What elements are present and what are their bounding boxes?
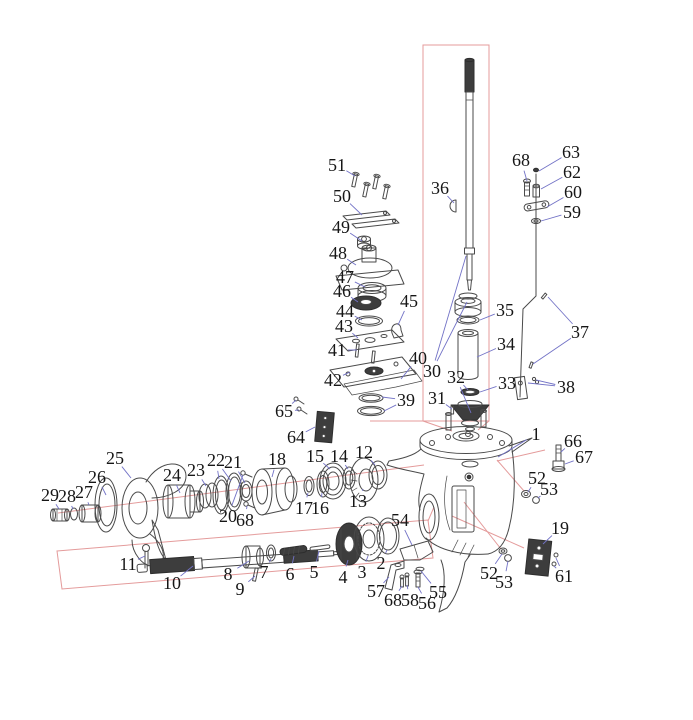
part-label-65: 65 bbox=[275, 401, 293, 421]
part-label-19: 19 bbox=[551, 518, 569, 538]
part-label-51: 51 bbox=[328, 155, 346, 175]
anode-19 bbox=[525, 539, 552, 576]
part-label-41: 41 bbox=[328, 340, 346, 360]
part-label-24: 24 bbox=[163, 465, 181, 485]
prop-spacer bbox=[79, 505, 101, 522]
red-connector bbox=[497, 460, 524, 491]
part-label-9: 9 bbox=[236, 579, 245, 599]
pump-grommet bbox=[358, 236, 371, 249]
leader-line-17 bbox=[307, 493, 308, 497]
washer-52a bbox=[522, 491, 531, 498]
leader-line-64 bbox=[306, 427, 315, 432]
small-seal bbox=[240, 481, 252, 501]
pump-bolts bbox=[350, 172, 390, 200]
red-connector bbox=[464, 502, 501, 549]
part-label-33: 33 bbox=[498, 373, 516, 393]
impeller bbox=[351, 296, 381, 310]
driveshaft bbox=[465, 58, 475, 290]
part-label-21: 21 bbox=[224, 452, 242, 472]
part-label-54: 54 bbox=[391, 510, 409, 530]
part-label-1: 1 bbox=[532, 424, 541, 444]
bearing-carrier bbox=[252, 468, 297, 515]
anode-screws bbox=[294, 397, 307, 414]
leader-line-30 bbox=[437, 302, 467, 361]
part-label-68: 68 bbox=[384, 590, 402, 610]
part-label-8: 8 bbox=[224, 564, 233, 584]
leader-line-39 bbox=[382, 397, 395, 399]
driveshaft-bearing bbox=[455, 293, 481, 317]
prop-nut bbox=[51, 509, 70, 521]
screw-68c bbox=[400, 575, 404, 587]
part-label-67: 67 bbox=[575, 447, 593, 467]
leader-line-48 bbox=[347, 259, 356, 265]
diagram-canvas: 3651504948474644434142454039303132353433… bbox=[0, 0, 693, 720]
screw-58 bbox=[405, 573, 409, 586]
leader-line-26 bbox=[102, 487, 106, 495]
part-art-layer bbox=[51, 58, 566, 612]
leader-line-62 bbox=[541, 177, 562, 189]
part-label-43: 43 bbox=[335, 316, 353, 336]
leader-line-40 bbox=[401, 367, 411, 379]
pump-plates bbox=[343, 211, 399, 228]
leader-line-45 bbox=[398, 311, 404, 325]
part-label-30: 30 bbox=[423, 361, 441, 381]
leader-line-49 bbox=[350, 233, 362, 241]
leader-line-34 bbox=[477, 348, 496, 357]
part-label-39: 39 bbox=[397, 390, 415, 410]
trim-tab bbox=[400, 541, 433, 560]
exploded-parts-diagram: 3651504948474644434142454039303132353433… bbox=[0, 0, 693, 720]
part-label-42: 42 bbox=[324, 370, 342, 390]
part-label-57: 57 bbox=[367, 581, 385, 601]
part-label-32: 32 bbox=[447, 367, 465, 387]
red-connector bbox=[428, 507, 434, 521]
part-label-68: 68 bbox=[236, 510, 254, 530]
part-label-64: 64 bbox=[287, 427, 305, 447]
washer-7 bbox=[267, 545, 276, 561]
part-label-34: 34 bbox=[497, 334, 515, 354]
part-label-53: 53 bbox=[495, 572, 513, 592]
leader-line-50 bbox=[350, 204, 362, 215]
leader-line-59 bbox=[541, 215, 561, 221]
leader-lines-layer bbox=[56, 158, 574, 594]
part-label-2: 2 bbox=[377, 553, 386, 573]
part-label-18: 18 bbox=[268, 449, 286, 469]
leader-line-18 bbox=[272, 470, 274, 477]
driveshaft-oring bbox=[457, 316, 479, 324]
propshaft-bearing bbox=[320, 463, 346, 499]
part-label-59: 59 bbox=[563, 202, 581, 222]
part-label-63: 63 bbox=[562, 142, 580, 162]
part-label-22: 22 bbox=[207, 450, 225, 470]
part-label-60: 60 bbox=[564, 182, 582, 202]
thrust-hub bbox=[163, 485, 204, 518]
part-label-4: 4 bbox=[339, 567, 348, 587]
part-label-36: 36 bbox=[431, 178, 449, 198]
prop-washer bbox=[71, 508, 78, 520]
part-label-27: 27 bbox=[75, 482, 93, 502]
part-label-3: 3 bbox=[358, 562, 367, 582]
leader-line-60 bbox=[547, 197, 563, 207]
part-label-58: 58 bbox=[401, 590, 419, 610]
leader-line-53 bbox=[506, 561, 508, 571]
leader-line-51 bbox=[346, 171, 355, 176]
pump-gasket-ring bbox=[356, 316, 383, 326]
base-orings bbox=[358, 394, 385, 416]
ring-14 bbox=[343, 467, 355, 489]
leader-line-2 bbox=[386, 550, 387, 553]
part-label-5: 5 bbox=[310, 562, 319, 582]
leader-line-25 bbox=[122, 467, 131, 478]
part-label-62: 62 bbox=[563, 162, 581, 182]
part-label-45: 45 bbox=[400, 291, 418, 311]
bolt-56 bbox=[414, 570, 422, 587]
small-ring-17 bbox=[304, 477, 314, 496]
part-label-68: 68 bbox=[512, 150, 530, 170]
part-label-7: 7 bbox=[260, 562, 269, 582]
nut-53b bbox=[505, 555, 512, 562]
red-connector bbox=[497, 450, 545, 461]
washer-52b bbox=[499, 548, 507, 554]
leader-line-11 bbox=[138, 556, 145, 559]
leader-line-67 bbox=[565, 461, 574, 464]
part-label-14: 14 bbox=[330, 446, 348, 466]
leader-line-37 bbox=[533, 338, 571, 364]
part-label-13: 13 bbox=[349, 491, 367, 511]
anode-small bbox=[315, 411, 335, 442]
part-label-50: 50 bbox=[333, 186, 351, 206]
part-label-37: 37 bbox=[571, 322, 589, 342]
part-label-16: 16 bbox=[311, 498, 329, 518]
leader-line-37 bbox=[548, 297, 573, 324]
leader-line-33 bbox=[480, 386, 497, 392]
shift-rod-parts bbox=[515, 168, 550, 399]
part-label-61: 61 bbox=[555, 566, 573, 586]
part-label-11: 11 bbox=[119, 554, 136, 574]
leader-line-54 bbox=[405, 530, 412, 545]
part-label-35: 35 bbox=[496, 300, 514, 320]
leader-line-35 bbox=[480, 314, 495, 320]
part-label-23: 23 bbox=[187, 460, 205, 480]
part-label-25: 25 bbox=[106, 448, 124, 468]
leader-line-39 bbox=[384, 405, 396, 411]
leader-line-61 bbox=[556, 558, 560, 566]
red-connector bbox=[478, 421, 489, 430]
part-label-15: 15 bbox=[306, 446, 324, 466]
part-label-29: 29 bbox=[41, 485, 59, 505]
part-label-10: 10 bbox=[163, 573, 181, 593]
part-label-20: 20 bbox=[219, 506, 237, 526]
part-label-31: 31 bbox=[428, 388, 446, 408]
part-label-38: 38 bbox=[557, 377, 575, 397]
leader-line-47 bbox=[355, 282, 365, 287]
part-label-28: 28 bbox=[58, 486, 76, 506]
part-label-48: 48 bbox=[329, 243, 347, 263]
follower-pin bbox=[253, 568, 259, 581]
leader-line-63 bbox=[539, 158, 562, 171]
part-label-46: 46 bbox=[333, 281, 351, 301]
leader-line-16 bbox=[321, 493, 322, 497]
part-label-49: 49 bbox=[332, 217, 350, 237]
part-label-6: 6 bbox=[286, 564, 295, 584]
part-label-53: 53 bbox=[540, 479, 558, 499]
part-label-55: 55 bbox=[429, 582, 447, 602]
part-label-12: 12 bbox=[355, 442, 373, 462]
